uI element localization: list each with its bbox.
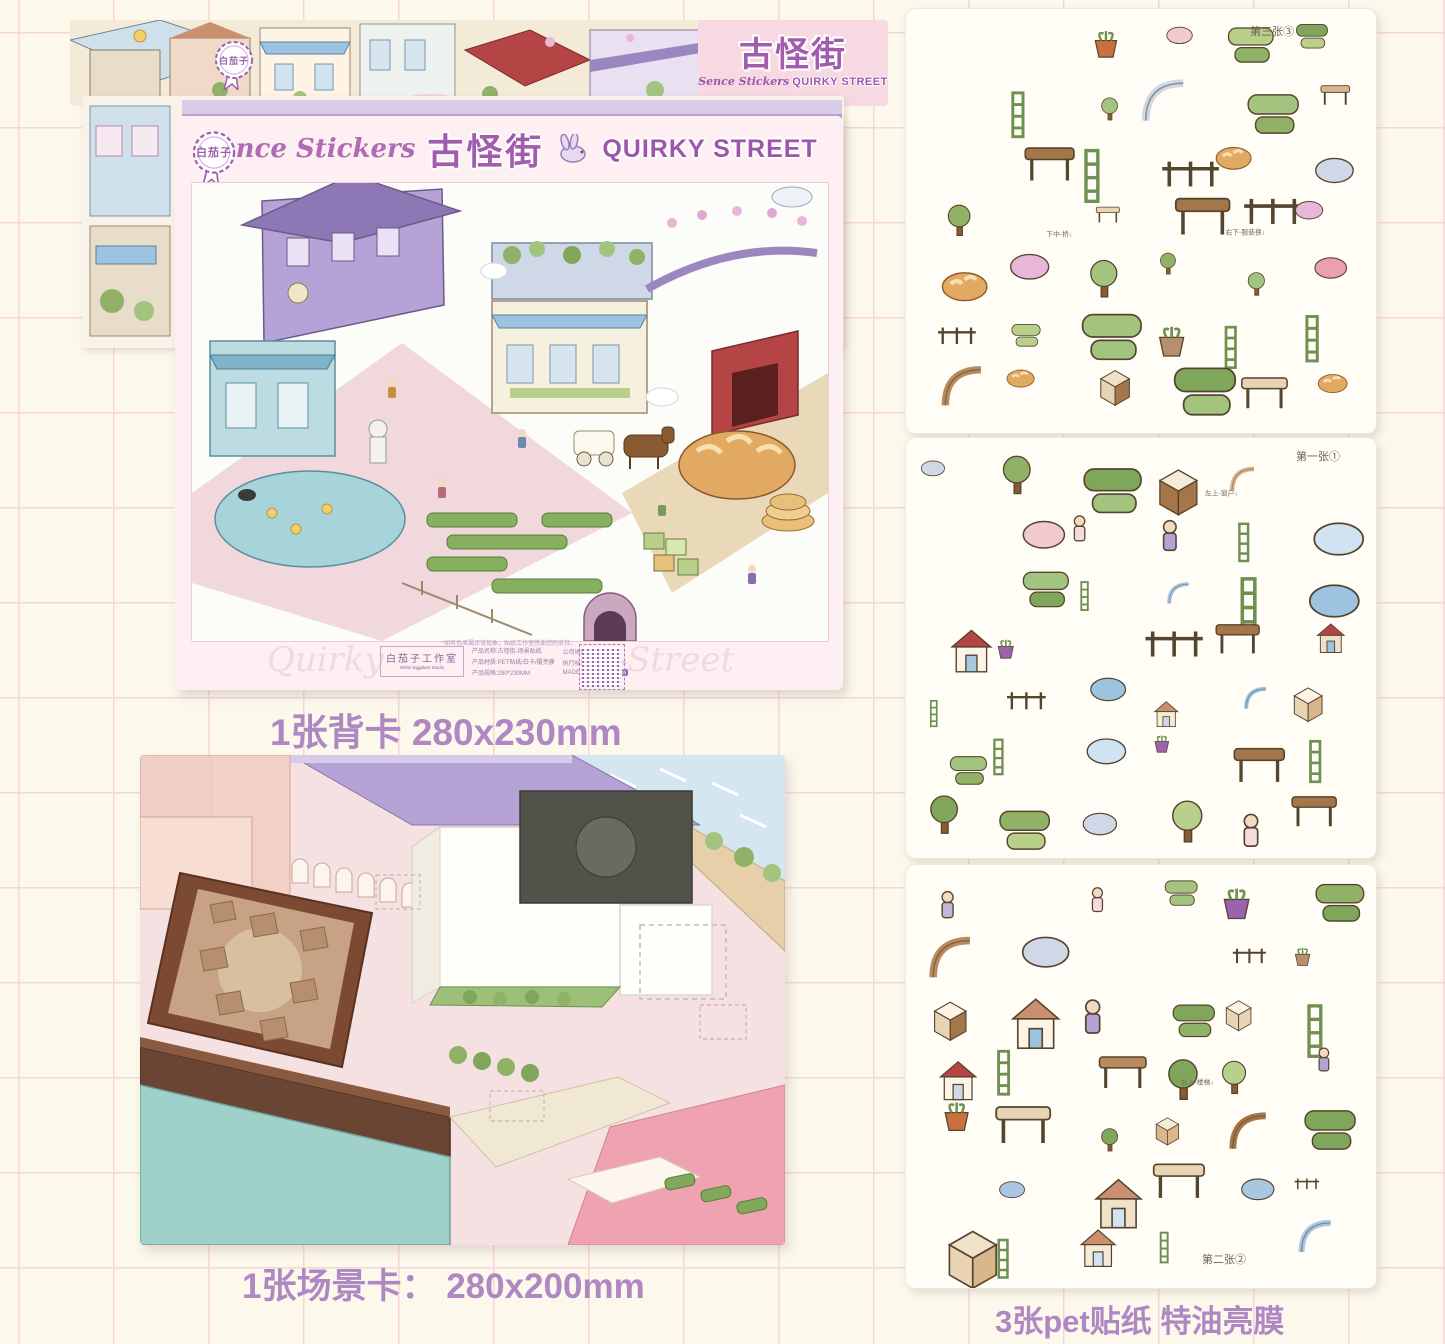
backing-card-header: Sence Stickers 古怪街 QUIRKY STREET — [175, 116, 843, 182]
banner-script: Sence Stickers — [698, 75, 789, 88]
sheet-1-stickers — [906, 438, 1376, 858]
sheet-1-label: 第一张① — [1296, 448, 1340, 464]
banner-title-en: QUIRKY STREET — [792, 76, 888, 88]
scene-card-illustration — [140, 755, 785, 1245]
sticker-sheet-2: 第二张② 右上-楼梯↓ — [905, 864, 1377, 1289]
scene-card-caption: 1张场景卡： 280x200mm — [242, 1258, 645, 1309]
sticker-sheet-3: 第三张③ 下中-桥↓ 右下-服装换↓ — [905, 8, 1377, 434]
sheet-3-label: 第三张③ — [1250, 23, 1294, 39]
backing-card: Sence Stickers 古怪街 QUIRKY STREET 白茄子 — [175, 116, 843, 690]
studio-name-en: White Eggplant Studio — [390, 665, 455, 670]
sticker-sheets-caption: 3张pet贴纸 特油亮膜 — [995, 1296, 1284, 1341]
backing-card-footer: Quirky Street *如有色差属正常现象，贴纸工作室感谢您的支持。 白茄… — [175, 640, 843, 690]
product-info-left: 产品名称:古怪街-场景贴纸 产品材质:PET贴纸/白卡/覆亮膜 产品规格:280… — [472, 646, 555, 677]
sheet-2-stickers — [906, 865, 1376, 1288]
badge-text: 白茄子 — [196, 144, 232, 160]
studio-badge: 白茄子 — [208, 38, 260, 90]
scene-card — [140, 755, 785, 1245]
sheet-2-label: 第二张② — [1202, 1251, 1246, 1267]
banner-logo-panel: 古怪街 Sence Stickers QUIRKY STREET — [698, 20, 888, 106]
sheet-3-tag-2: 右下-服装换↓ — [1226, 228, 1266, 237]
header-title-cn: 古怪街 — [427, 123, 544, 175]
sheet-2-tag-1: 右上-楼梯↓ — [1181, 1078, 1214, 1087]
backing-card-scene — [191, 182, 829, 642]
badge-text: 白茄子 — [219, 54, 249, 67]
banner-title-cn: 古怪街 — [739, 38, 847, 72]
sheet-3-tag-1: 下中-桥↓ — [1046, 230, 1072, 239]
product-info-box: 白茄子工作室 White Eggplant Studio 产品名称:古怪街-场景… — [380, 646, 570, 677]
sheet-3-stickers — [906, 9, 1376, 433]
studio-badge: 白茄子 — [185, 128, 243, 186]
sheet-1-tag-1: 左上-窗户↓ — [1205, 489, 1238, 498]
backing-card-caption: 1张背卡 280x230mm — [270, 702, 622, 756]
bunny-icon — [556, 134, 590, 164]
qr-code — [579, 644, 625, 690]
header-title-en: QUIRKY STREET — [602, 135, 817, 164]
banner-illustration — [70, 20, 718, 106]
banner-card: 白茄子 古怪街 Sence Stickers QUIRKY STREET — [70, 20, 888, 106]
sticker-sheet-1: 第一张① 左上-窗户↓ — [905, 437, 1377, 859]
studio-name-cn: 白茄子工作室 — [386, 650, 458, 665]
studio-name-box: 白茄子工作室 White Eggplant Studio — [380, 646, 464, 677]
